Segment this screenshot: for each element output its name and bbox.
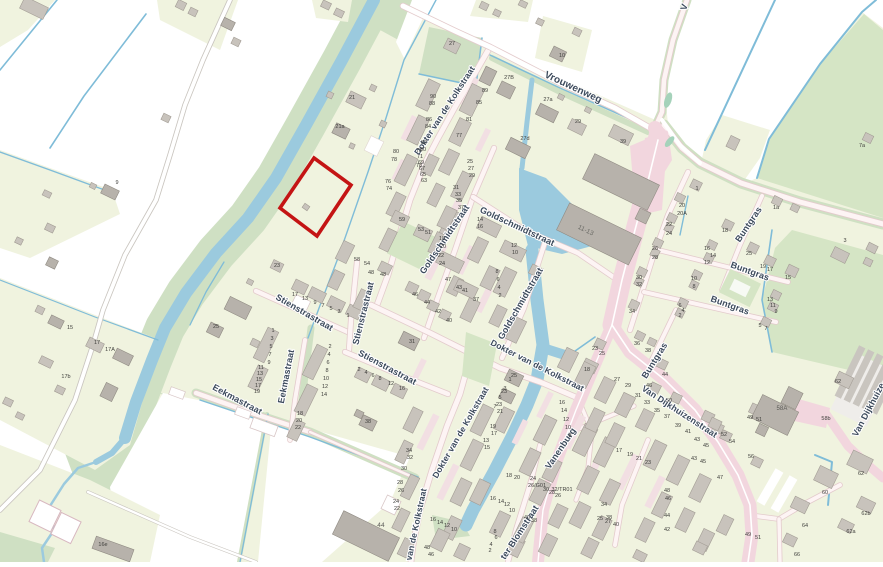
svg-text:8: 8 [495,269,498,275]
svg-text:35: 35 [654,408,660,414]
svg-text:37: 37 [664,414,670,420]
svg-text:37: 37 [458,205,464,211]
svg-text:52: 52 [721,432,727,438]
svg-text:48: 48 [664,488,670,494]
svg-text:22: 22 [666,222,672,228]
svg-text:64: 64 [802,523,808,529]
svg-text:58A: 58A [777,406,788,412]
svg-text:20A: 20A [677,211,687,217]
svg-text:32/TR01: 32/TR01 [551,487,572,493]
svg-text:4: 4 [327,352,330,358]
svg-text:26: 26 [652,246,658,252]
svg-text:1: 1 [346,313,349,319]
svg-text:39: 39 [620,139,626,145]
svg-text:44: 44 [424,300,430,306]
svg-text:10: 10 [559,53,565,59]
svg-text:13: 13 [483,438,489,444]
svg-text:22: 22 [438,253,444,259]
svg-text:25: 25 [467,159,473,165]
svg-text:12: 12 [563,417,569,423]
svg-text:16: 16 [430,517,436,523]
svg-text:22: 22 [295,425,301,431]
svg-text:37: 37 [473,297,479,303]
svg-text:24: 24 [666,231,672,237]
svg-text:88: 88 [429,101,435,107]
svg-text:62a: 62a [846,529,856,535]
svg-text:76: 76 [385,179,391,185]
svg-text:1: 1 [695,186,698,192]
svg-text:23: 23 [496,402,502,408]
svg-text:49: 49 [747,415,753,421]
svg-text:40: 40 [524,515,530,521]
svg-text:23: 23 [274,263,280,269]
svg-text:2: 2 [678,313,681,319]
svg-text:66: 66 [794,552,800,558]
svg-text:48: 48 [424,545,430,551]
svg-text:6: 6 [494,535,497,541]
svg-text:56: 56 [748,454,754,460]
svg-text:17: 17 [94,340,100,346]
svg-text:16: 16 [704,246,710,252]
svg-text:14: 14 [321,392,327,398]
svg-text:14: 14 [710,253,716,259]
svg-text:85: 85 [476,100,482,106]
svg-text:6: 6 [326,360,329,366]
svg-text:49: 49 [745,532,751,538]
svg-text:18: 18 [439,236,445,242]
svg-text:21: 21 [349,95,355,101]
svg-text:4: 4 [364,370,367,376]
svg-text:12: 12 [322,384,328,390]
svg-text:48: 48 [380,272,386,278]
svg-text:18: 18 [297,411,303,417]
svg-text:44: 44 [664,513,670,519]
svg-text:31: 31 [635,393,641,399]
svg-text:54: 54 [364,261,370,267]
svg-text:9: 9 [774,309,777,315]
svg-text:29: 29 [469,173,475,179]
svg-text:1: 1 [508,377,511,383]
svg-text:16: 16 [399,386,405,392]
svg-text:41: 41 [462,288,468,294]
svg-text:26: 26 [398,488,404,494]
svg-text:34: 34 [601,502,607,508]
svg-text:27d: 27d [520,136,529,142]
svg-text:3: 3 [337,309,340,315]
svg-text:4: 4 [681,308,684,314]
svg-text:40: 40 [446,318,452,324]
svg-text:59: 59 [399,217,405,223]
svg-text:18: 18 [506,473,512,479]
svg-text:84: 84 [425,124,431,130]
svg-text:43: 43 [694,437,700,443]
svg-text:17: 17 [491,431,497,437]
svg-text:8: 8 [378,376,381,382]
svg-text:1: 1 [271,328,274,334]
svg-text:19: 19 [760,264,766,270]
svg-text:80: 80 [393,149,399,155]
svg-text:21a: 21a [335,124,345,130]
svg-text:20: 20 [679,203,685,209]
svg-text:63: 63 [421,178,427,184]
svg-text:14: 14 [561,408,567,414]
svg-text:31: 31 [409,339,415,345]
svg-text:81: 81 [466,117,472,123]
svg-text:82: 82 [421,140,427,146]
svg-text:8: 8 [325,368,328,374]
svg-text:15: 15 [67,325,73,331]
svg-text:4: 4 [497,285,500,291]
svg-text:25: 25 [597,516,603,522]
svg-text:28: 28 [397,480,403,486]
svg-text:23: 23 [645,460,651,466]
svg-text:17A: 17A [105,347,115,353]
svg-text:9: 9 [313,300,316,306]
svg-text:29: 29 [625,383,631,389]
svg-text:19: 19 [254,389,260,395]
svg-text:45: 45 [700,459,706,465]
svg-text:15: 15 [785,275,791,281]
svg-text:41: 41 [685,429,691,435]
svg-text:23: 23 [592,346,598,352]
svg-text:58: 58 [354,257,360,263]
svg-text:2: 2 [498,293,501,299]
svg-text:46: 46 [428,552,434,558]
svg-text:25: 25 [599,351,605,357]
svg-text:8: 8 [692,284,695,290]
svg-text:43: 43 [691,456,697,462]
svg-text:30: 30 [401,466,407,472]
svg-text:40: 40 [613,522,619,528]
svg-text:7a: 7a [859,143,866,149]
svg-text:18: 18 [584,367,590,373]
svg-text:35: 35 [456,198,462,204]
svg-text:17b: 17b [61,374,70,380]
svg-text:7: 7 [764,326,767,332]
svg-text:34: 34 [629,309,635,315]
svg-text:5: 5 [498,395,501,401]
svg-text:32: 32 [407,455,413,461]
svg-text:77: 77 [456,133,462,139]
svg-text:44: 44 [662,372,668,378]
svg-text:19: 19 [627,452,633,458]
svg-text:12: 12 [444,523,450,529]
svg-text:54: 54 [729,439,735,445]
svg-text:12: 12 [704,260,710,266]
svg-text:22: 22 [394,506,400,512]
svg-text:46: 46 [646,383,652,389]
svg-text:20: 20 [296,418,302,424]
svg-text:1a: 1a [773,205,780,211]
svg-text:58b: 58b [821,416,830,422]
svg-text:31: 31 [453,185,459,191]
svg-text:3: 3 [503,386,506,392]
svg-text:27a: 27a [543,97,553,103]
svg-text:14: 14 [437,520,443,526]
svg-text:46: 46 [665,496,671,502]
svg-text:21: 21 [497,409,503,415]
svg-text:16: 16 [490,496,496,502]
svg-text:26/G01: 26/G01 [528,483,546,489]
svg-text:89: 89 [482,88,488,94]
svg-text:6: 6 [371,373,374,379]
svg-text:7: 7 [268,352,271,358]
svg-text:27: 27 [449,41,455,47]
svg-text:20: 20 [514,475,520,481]
svg-text:6: 6 [496,277,499,283]
svg-text:24: 24 [439,261,445,267]
svg-text:36: 36 [634,341,640,347]
svg-text:12: 12 [511,243,517,249]
svg-text:10: 10 [451,527,457,533]
svg-text:8: 8 [568,433,571,439]
svg-text:25: 25 [746,251,752,257]
svg-text:53: 53 [418,227,424,233]
svg-text:2: 2 [488,548,491,554]
svg-text:39: 39 [675,423,681,429]
svg-text:17: 17 [767,267,773,273]
svg-text:51: 51 [425,230,431,236]
svg-text:28: 28 [652,255,658,261]
svg-text:86: 86 [426,117,432,123]
svg-text:25: 25 [213,324,219,330]
svg-text:17: 17 [292,292,298,298]
svg-text:21: 21 [636,456,642,462]
svg-text:47: 47 [445,277,451,283]
svg-text:5: 5 [758,323,761,329]
svg-text:30: 30 [636,275,642,281]
svg-text:51: 51 [755,535,761,541]
svg-text:24: 24 [393,499,399,505]
svg-text:16: 16 [477,224,483,230]
svg-text:10: 10 [565,425,571,431]
svg-text:42: 42 [664,527,670,533]
svg-text:74: 74 [386,186,392,192]
svg-text:10: 10 [323,376,329,382]
svg-text:20: 20 [440,244,446,250]
svg-text:16: 16 [559,400,565,406]
svg-text:62: 62 [835,379,841,385]
svg-text:24: 24 [530,476,536,482]
svg-text:46: 46 [412,292,418,298]
svg-text:15: 15 [484,445,490,451]
svg-text:90: 90 [430,94,436,100]
svg-text:2: 2 [357,367,360,373]
svg-text:38: 38 [531,518,537,524]
svg-text:51: 51 [756,417,762,423]
svg-text:7: 7 [493,404,496,410]
svg-text:62b: 62b [861,511,870,517]
svg-text:27: 27 [605,519,611,525]
svg-text:5: 5 [329,306,332,312]
svg-text:34: 34 [406,448,412,454]
svg-text:47: 47 [717,475,723,481]
svg-text:25: 25 [511,373,517,379]
svg-text:27: 27 [468,166,474,172]
svg-text:62: 62 [858,471,864,477]
svg-text:10: 10 [691,276,697,282]
svg-text:17: 17 [616,448,622,454]
svg-text:38: 38 [365,419,371,425]
svg-text:44: 44 [377,522,385,529]
svg-text:32: 32 [636,282,642,288]
svg-text:9: 9 [267,360,270,366]
svg-text:50: 50 [666,398,672,404]
svg-text:2: 2 [328,344,331,350]
svg-text:5: 5 [269,344,272,350]
svg-text:27: 27 [614,377,620,383]
svg-text:14: 14 [477,217,483,223]
svg-text:3: 3 [843,238,846,244]
svg-text:29: 29 [575,119,581,125]
svg-text:19: 19 [490,424,496,430]
svg-text:78: 78 [391,157,397,163]
svg-text:48: 48 [368,270,374,276]
svg-text:42: 42 [435,309,441,315]
svg-text:60: 60 [822,490,828,496]
svg-text:12: 12 [388,381,394,387]
svg-text:7: 7 [321,303,324,309]
svg-text:16e: 16e [98,542,107,548]
svg-text:9: 9 [115,180,118,186]
svg-text:3: 3 [270,336,273,342]
svg-text:10: 10 [512,250,518,256]
svg-text:18: 18 [722,228,728,234]
svg-text:27B: 27B [504,75,514,81]
svg-text:13: 13 [302,296,308,302]
svg-text:26: 26 [555,493,561,499]
svg-text:38: 38 [645,348,651,354]
svg-text:45: 45 [703,443,709,449]
svg-text:33: 33 [644,400,650,406]
svg-text:10: 10 [509,508,515,514]
